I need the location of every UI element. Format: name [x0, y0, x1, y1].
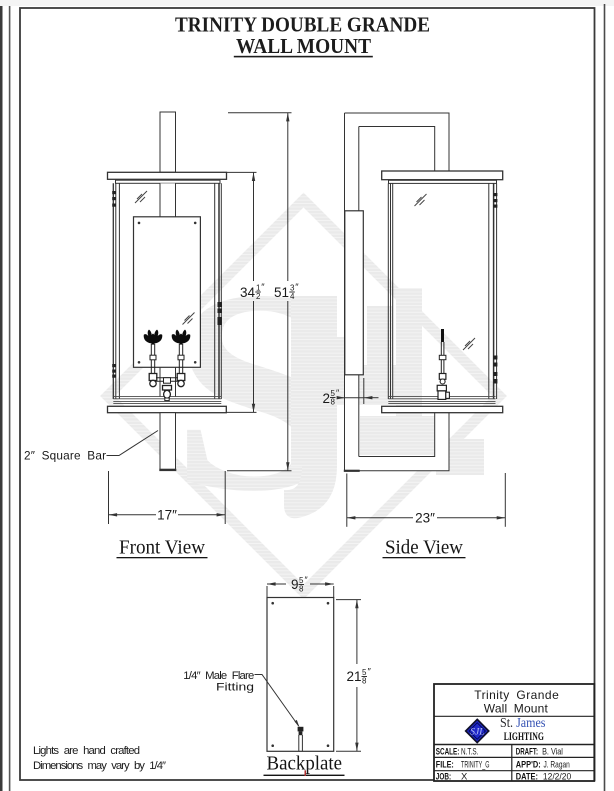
svg-text:Trinity Grande: Trinity Grande	[474, 688, 559, 702]
svg-text:St. James: St. James	[500, 715, 546, 730]
svg-text:N.T.S.: N.T.S.	[461, 746, 478, 757]
svg-text:SJL: SJL	[470, 728, 484, 738]
svg-text:4: 4	[290, 292, 295, 301]
svg-text:2″ Square Bar: 2″ Square Bar	[24, 449, 106, 463]
svg-text:9: 9	[291, 577, 299, 592]
svg-text:DATE:: DATE:	[516, 772, 538, 782]
svg-text:21: 21	[347, 669, 362, 684]
svg-text:8: 8	[331, 398, 336, 407]
svg-text:FILE:: FILE:	[436, 760, 454, 770]
svg-text:Backplate: Backplate	[267, 753, 343, 775]
svg-text:SCALE:: SCALE:	[436, 746, 460, 756]
svg-text:DRAFT:: DRAFT:	[516, 746, 538, 756]
svg-text:JOB:: JOB:	[436, 772, 451, 782]
svg-text:Dimensions may vary by 1/4″: Dimensions may vary by 1/4″	[33, 760, 166, 772]
svg-text:Fitting: Fitting	[216, 682, 254, 694]
svg-text:2: 2	[323, 391, 331, 406]
svg-text:2: 2	[256, 292, 261, 301]
svg-text:APP'D:: APP'D:	[516, 760, 541, 770]
svg-text:34: 34	[240, 285, 256, 300]
svg-text:LIGHTING: LIGHTING	[504, 731, 544, 743]
svg-text:Lights are hand crafted: Lights are hand crafted	[33, 745, 140, 757]
svg-text:Side View: Side View	[385, 537, 464, 559]
svg-text:TRINITY DOUBLE GRANDE: TRINITY DOUBLE GRANDE	[175, 13, 430, 37]
svg-text:12/2/20: 12/2/20	[543, 772, 571, 783]
svg-text:23″: 23″	[415, 511, 435, 526]
svg-text:WALL MOUNT: WALL MOUNT	[236, 34, 371, 58]
svg-text:B. Vial: B. Vial	[542, 746, 563, 757]
svg-text:TRINITY_G: TRINITY_G	[461, 760, 490, 771]
svg-text:X: X	[461, 772, 468, 783]
svg-text:17″: 17″	[157, 508, 177, 523]
svg-text:Wall Mount: Wall Mount	[484, 701, 549, 715]
svg-text:8: 8	[299, 585, 304, 594]
svg-text:8: 8	[362, 677, 367, 686]
svg-text:Front View: Front View	[119, 537, 206, 559]
svg-text:51: 51	[274, 285, 289, 300]
svg-text:J. Ragan: J. Ragan	[544, 760, 570, 771]
svg-text:1/4″ Male Flare: 1/4″ Male Flare	[183, 670, 254, 682]
